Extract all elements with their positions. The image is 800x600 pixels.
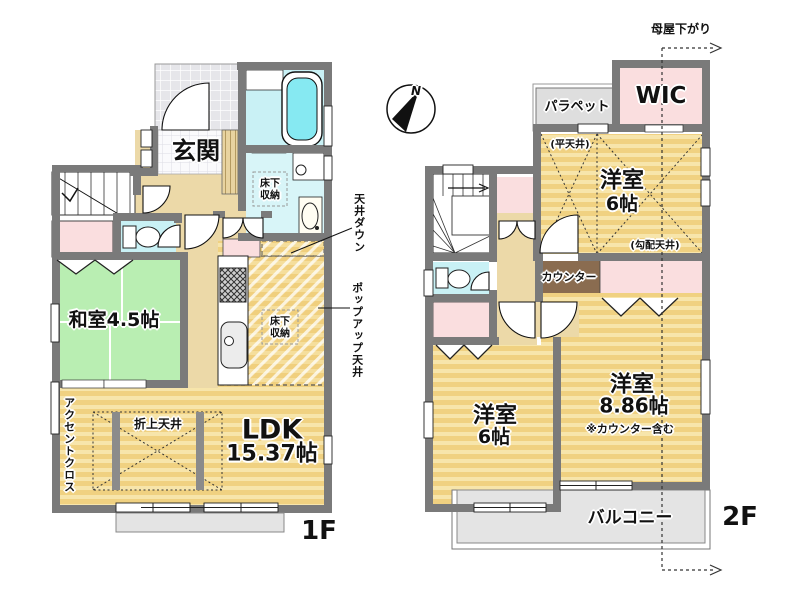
- room-size-ldk: 15.37帖: [226, 441, 318, 466]
- note-sloped-ceiling: (勾配天井): [630, 240, 679, 252]
- room-label-balcony: バルコニー: [588, 509, 673, 529]
- room-label-wic: WIC: [636, 83, 687, 109]
- stairs-2f: [433, 174, 492, 253]
- compass-north-label: N: [411, 85, 421, 99]
- floor2-label: 2F: [722, 503, 758, 533]
- note-parapet: パラペット: [544, 101, 609, 116]
- room-label-bedroom6-bottom: 洋室: [473, 403, 517, 428]
- note-counter: カウンター: [542, 272, 597, 285]
- note-underfloor-storage-washroom: 床下収納: [258, 179, 282, 202]
- note-moya-sagari: 母屋下がり: [651, 23, 711, 37]
- note-accent-cross: アクセントクロス: [62, 397, 75, 493]
- stairs-1f: [52, 172, 135, 215]
- floor2-plan: [424, 43, 721, 575]
- note-counter-included: ※カウンター含む: [586, 424, 674, 437]
- note-coffered-ceiling: 折上天井: [134, 418, 182, 432]
- room-label-genkan: 玄関: [172, 138, 220, 166]
- room-size-bedroom886: 8.86帖: [599, 395, 668, 418]
- floor1-label: 1F: [301, 517, 337, 547]
- note-ceiling-down: 天井ダウン: [352, 193, 365, 253]
- note-flat-ceiling: (平天井): [550, 139, 589, 151]
- note-popup-ceiling: ポップアップ天井: [350, 282, 363, 378]
- floorplan-canvas: N 玄関 和室4.5帖 LDK 15.37帖 床下収納 床下収納 折上天井 アク…: [0, 0, 800, 600]
- room-label-bedroom6-top: 洋室: [600, 168, 644, 193]
- room-label-washitsu: 和室4.5帖: [69, 310, 160, 332]
- note-underfloor-storage-kitchen: 床下収納: [268, 317, 292, 340]
- room-size-bedroom6-bottom: 6帖: [478, 427, 510, 449]
- room-size-bedroom6-top: 6帖: [606, 194, 638, 216]
